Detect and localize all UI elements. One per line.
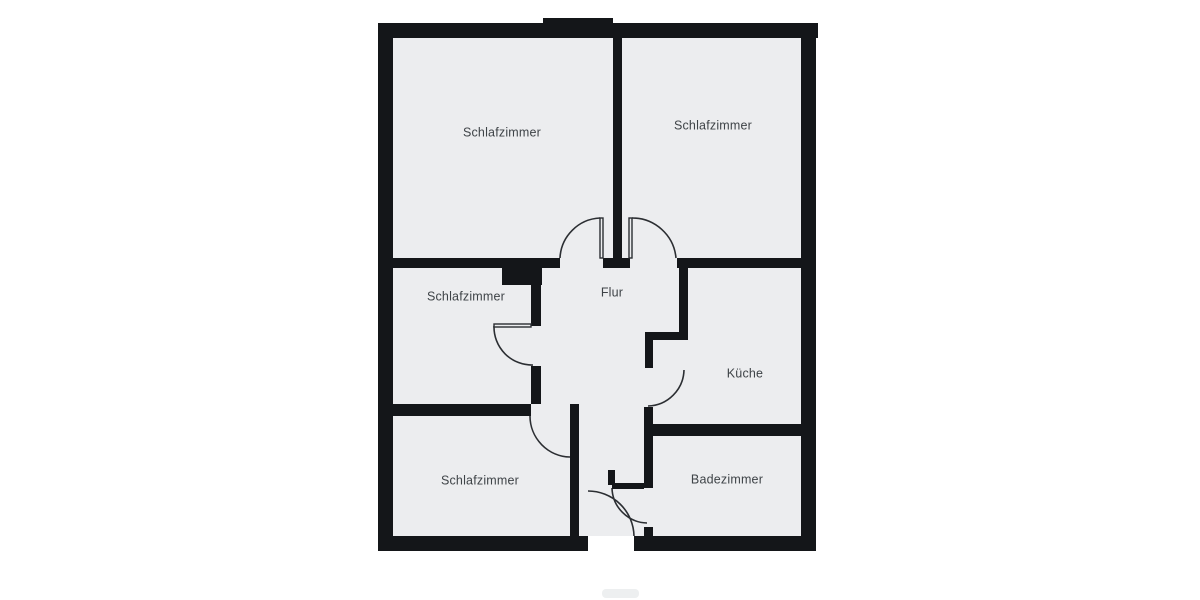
wall-divider-top-bedrooms: [613, 37, 622, 258]
outer-wall-top-bump: [543, 18, 613, 25]
wall-kueche-lower: [644, 407, 653, 488]
wall-band-middle: [393, 404, 531, 416]
wall-kueche-doorjamb: [645, 340, 653, 368]
door-leaf-schlafzimmer-top-right: [629, 218, 632, 258]
room-label-schlafzimmer-middle: Schlafzimmer: [427, 289, 505, 303]
room-label-flur: Flur: [601, 285, 623, 299]
room-label-schlafzimmer-top-right: Schlafzimmer: [674, 118, 752, 132]
wall-flur-left-upper: [531, 285, 541, 326]
door-leaf-schlafzimmer-middle: [494, 324, 531, 327]
room-label-schlafzimmer-bottom: Schlafzimmer: [441, 473, 519, 487]
door-leaf-schlafzimmer-top-left: [600, 218, 603, 258]
wall-flur-left-lower: [531, 366, 541, 404]
outer-wall-left: [378, 23, 393, 551]
wall-vestibule: [570, 404, 579, 536]
wall-band-top-center-stub: [603, 258, 630, 268]
wall-kueche-jog: [645, 332, 688, 340]
interior-floor: [393, 37, 801, 536]
wall-partition-thin: [612, 483, 644, 489]
outer-wall-bottom-left: [378, 536, 588, 551]
outer-wall-bottom-right: [634, 536, 816, 551]
wall-bad-divider: [644, 424, 801, 436]
wall-band-top-right: [677, 258, 801, 268]
room-label-kueche: Küche: [727, 366, 763, 380]
watermark-mark: [602, 589, 639, 598]
floor-plan: SchlafzimmerSchlafzimmerSchlafzimmerFlur…: [0, 0, 1200, 600]
wall-bad-stub: [644, 527, 653, 536]
outer-wall-right: [801, 23, 816, 551]
floor-fill-group: [393, 37, 801, 536]
wall-pillar-stub: [608, 470, 615, 485]
room-label-schlafzimmer-top-left: Schlafzimmer: [463, 125, 541, 139]
wall-notch-block: [502, 258, 542, 285]
outer-wall-top: [378, 23, 818, 38]
room-label-badezimmer: Badezimmer: [691, 472, 763, 486]
wall-kueche-upper: [679, 268, 688, 332]
floorplan-canvas: SchlafzimmerSchlafzimmerSchlafzimmerFlur…: [0, 0, 1200, 600]
